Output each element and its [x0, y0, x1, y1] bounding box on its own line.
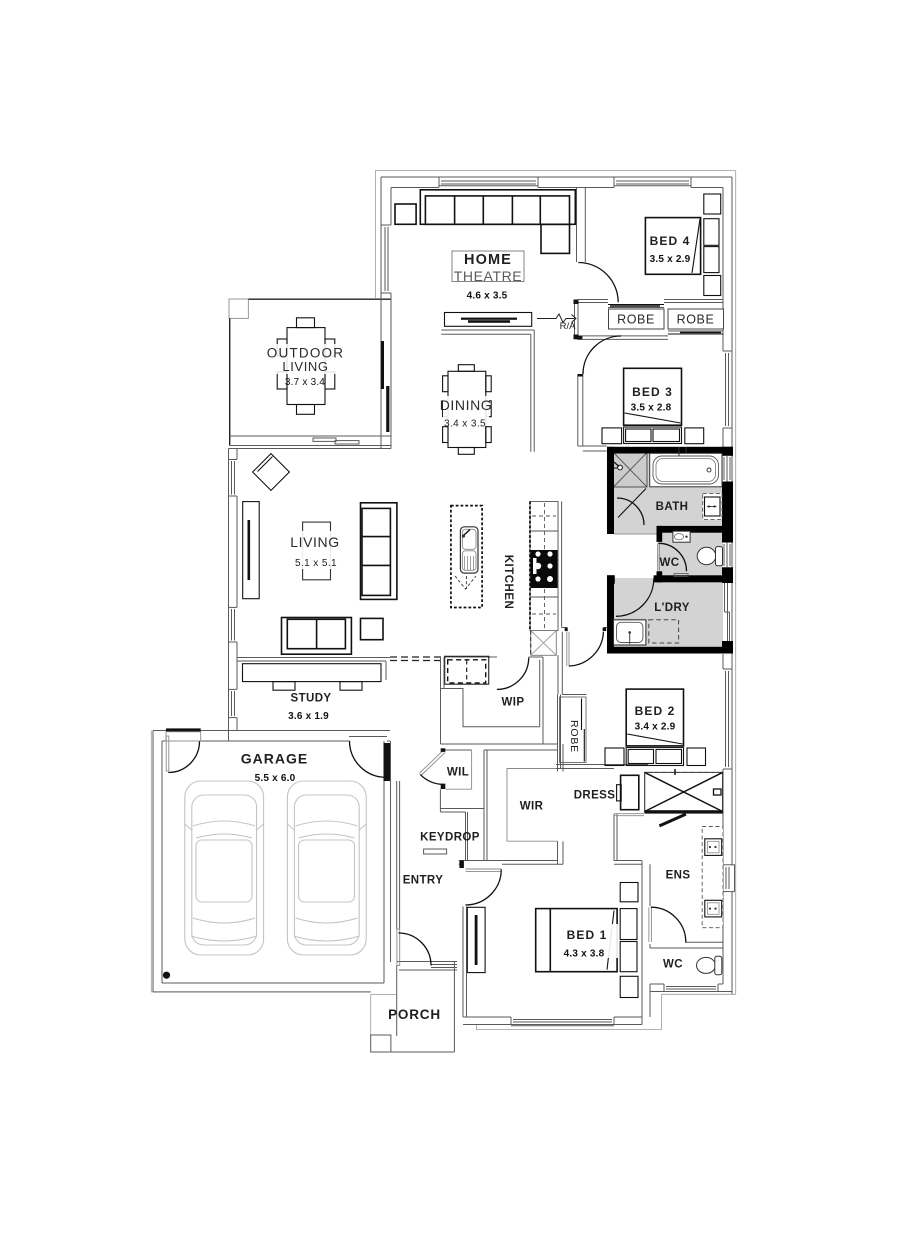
svg-text:BATH: BATH: [656, 501, 689, 513]
svg-text:WIL: WIL: [447, 767, 469, 779]
svg-text:WC: WC: [663, 959, 683, 971]
svg-text:ENTRY: ENTRY: [403, 875, 444, 887]
svg-text:LIVING: LIVING: [290, 534, 340, 550]
svg-text:WIR: WIR: [520, 801, 544, 813]
svg-text:DINING: DINING: [440, 397, 493, 413]
svg-text:4.6 x 3.5: 4.6 x 3.5: [467, 291, 508, 302]
svg-text:BED 1: BED 1: [567, 928, 608, 942]
svg-text:ROBE: ROBE: [568, 720, 580, 753]
svg-text:3.4 x 2.9: 3.4 x 2.9: [635, 722, 676, 733]
svg-text:5.1 x 5.1: 5.1 x 5.1: [295, 558, 337, 569]
svg-text:LIVING: LIVING: [282, 359, 328, 374]
svg-text:L'DRY: L'DRY: [654, 602, 690, 614]
svg-text:KITCHEN: KITCHEN: [502, 555, 514, 610]
svg-text:BED 3: BED 3: [632, 385, 673, 399]
svg-text:DRESS: DRESS: [574, 790, 616, 802]
svg-text:ROBE: ROBE: [677, 313, 715, 327]
svg-text:3.5 x 2.8: 3.5 x 2.8: [631, 403, 672, 414]
svg-text:GARAGE: GARAGE: [241, 751, 308, 767]
svg-text:3.4 x 3.5: 3.4 x 3.5: [444, 419, 486, 430]
svg-text:HOME: HOME: [464, 252, 512, 268]
svg-text:KEYDROP: KEYDROP: [420, 832, 480, 844]
svg-text:ENS: ENS: [666, 870, 691, 882]
svg-text:4.3 x 3.8: 4.3 x 3.8: [564, 949, 605, 960]
svg-text:5.5 x 6.0: 5.5 x 6.0: [255, 773, 296, 784]
svg-text:WIP: WIP: [502, 697, 525, 709]
svg-text:ROBE: ROBE: [617, 313, 655, 327]
svg-text:3.5 x 2.9: 3.5 x 2.9: [650, 254, 691, 265]
svg-text:BED 4: BED 4: [650, 234, 691, 248]
svg-text:WC: WC: [660, 557, 680, 569]
svg-text:3.6 x 1.9: 3.6 x 1.9: [288, 711, 329, 722]
svg-text:PORCH: PORCH: [388, 1007, 441, 1022]
svg-text:STUDY: STUDY: [291, 693, 332, 705]
svg-text:R/A: R/A: [560, 321, 577, 332]
svg-text:3.7 x 3.4: 3.7 x 3.4: [285, 377, 325, 388]
svg-text:THEATRE: THEATRE: [454, 268, 523, 284]
svg-text:BED 2: BED 2: [635, 704, 676, 718]
